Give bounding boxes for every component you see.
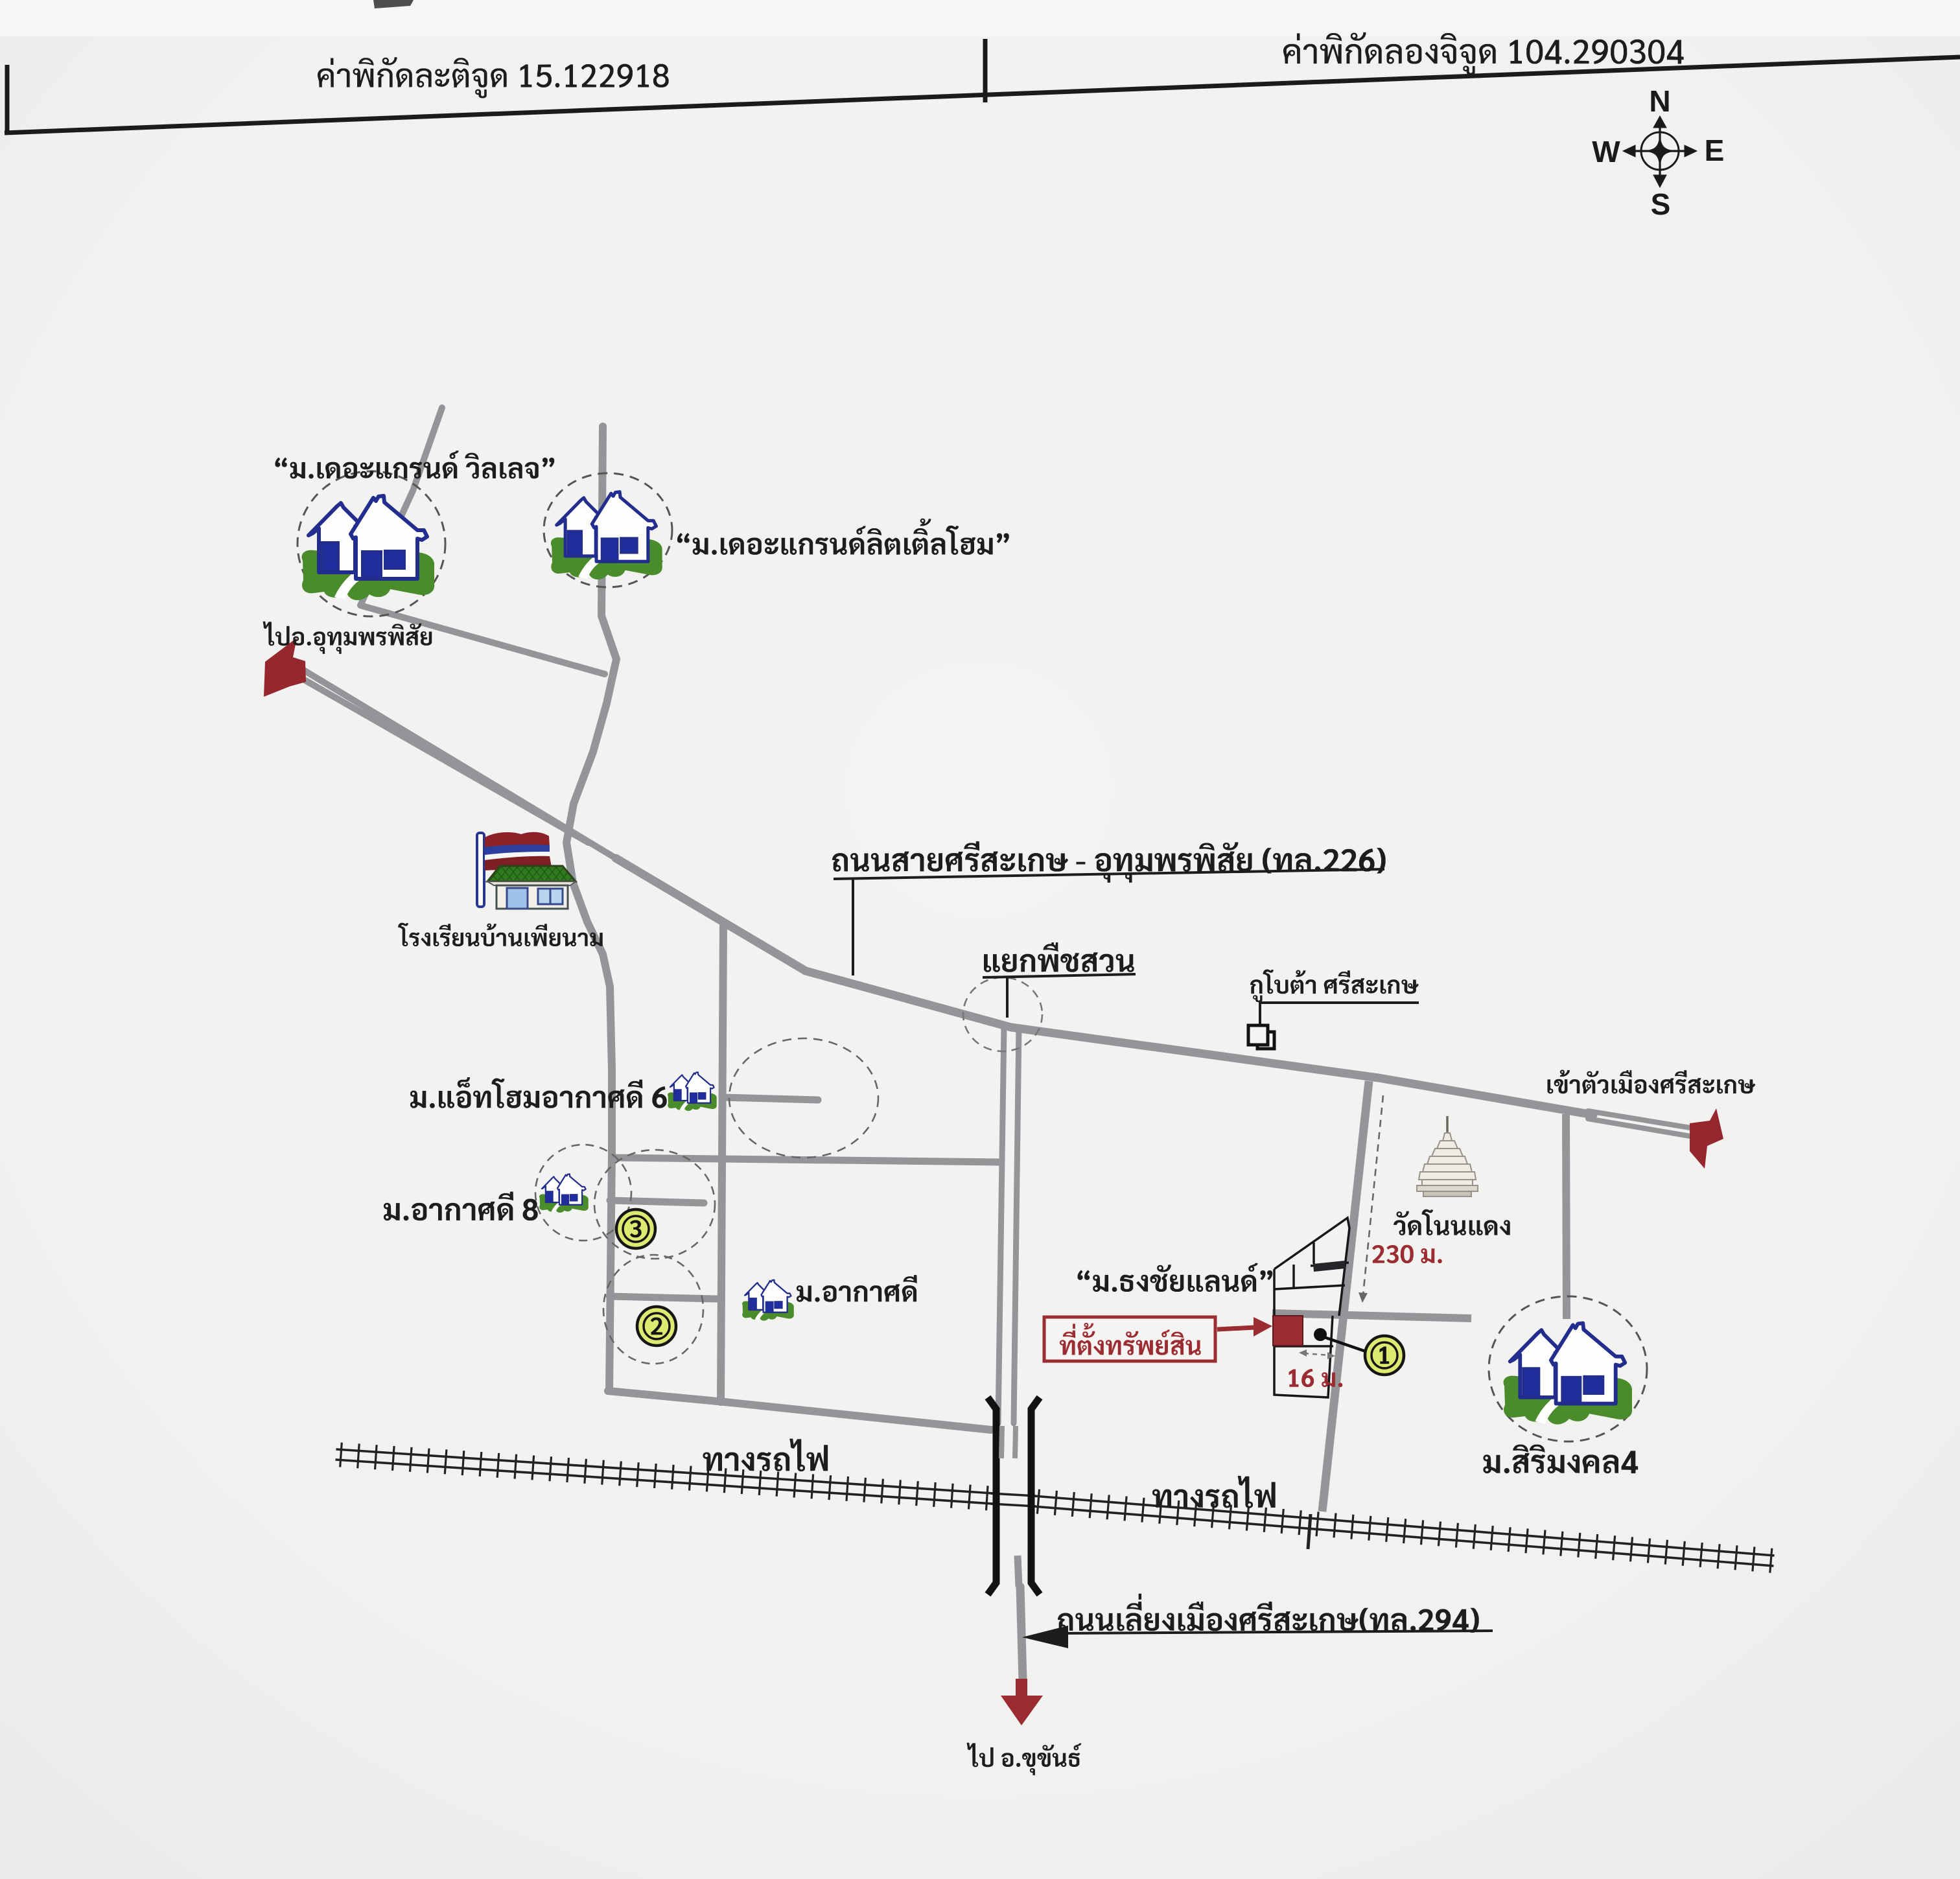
svg-text:S: S (1651, 187, 1671, 221)
svg-text:E: E (1705, 134, 1725, 167)
svg-text:W: W (1592, 135, 1620, 169)
svg-text:N: N (1649, 84, 1670, 118)
